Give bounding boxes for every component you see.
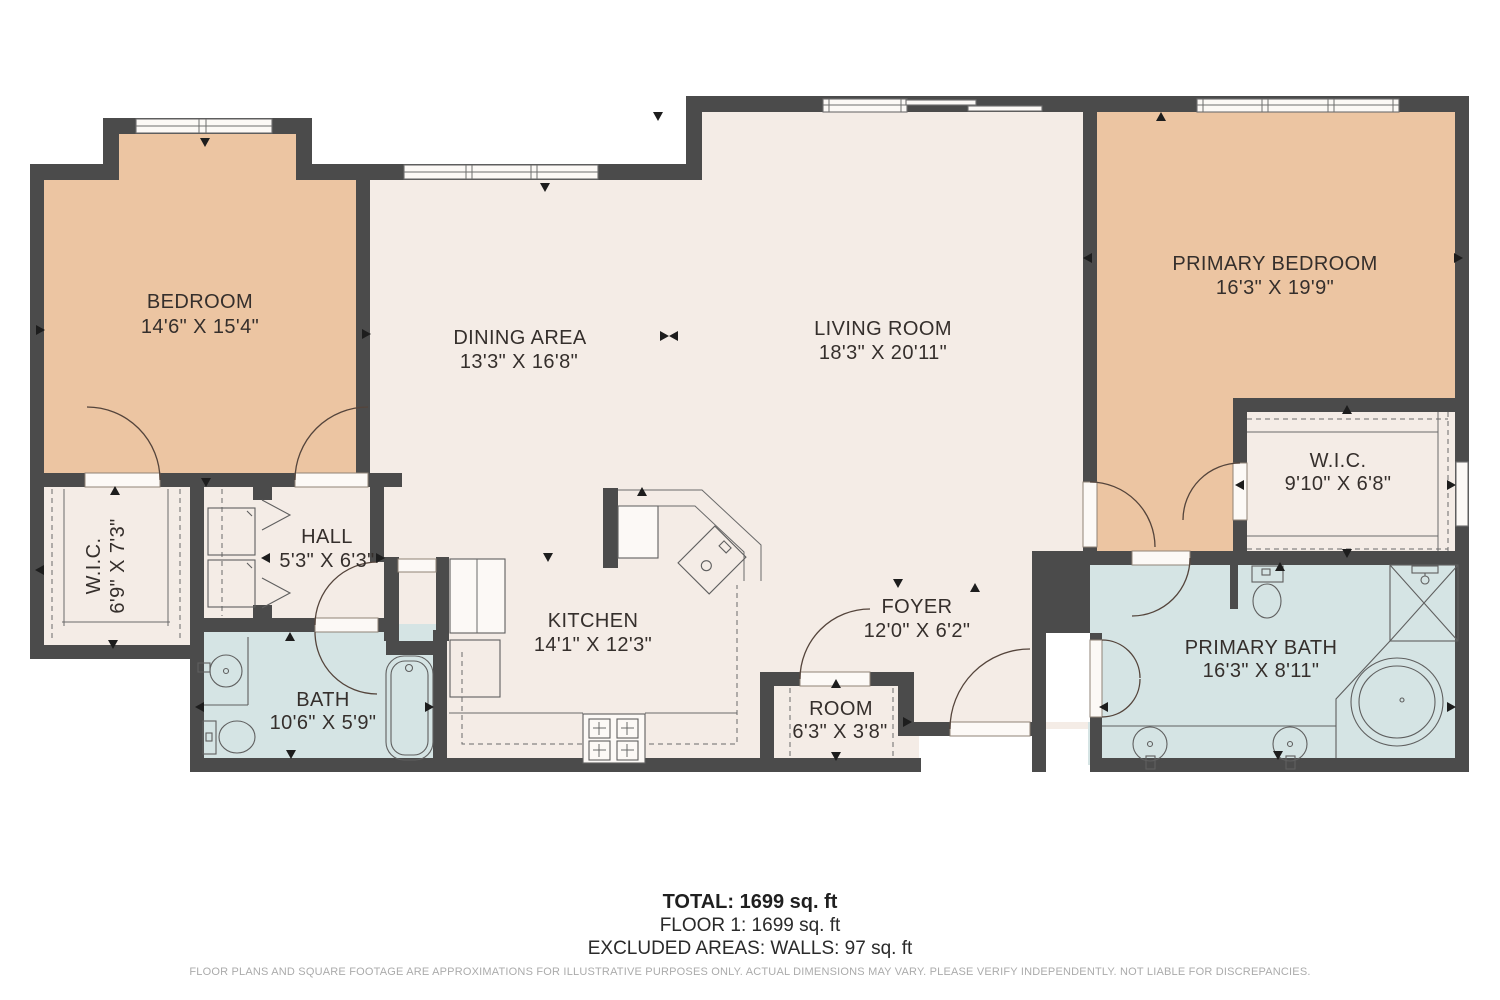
dining-window: [404, 165, 598, 179]
primary-bedroom-dims: 16'3" X 19'9": [1216, 277, 1334, 299]
bedroom-label: BEDROOM: [147, 291, 253, 313]
summary-block: TOTAL: 1699 sq. ft FLOOR 1: 1699 sq. ft …: [189, 891, 1310, 978]
living-dims: 18'3" X 20'11": [819, 342, 947, 364]
floor-plan-drawing: BEDROOM 14'6" X 15'4" DINING AREA 13'3" …: [0, 0, 1500, 1000]
living-window: [823, 99, 907, 112]
wic-right-label: W.I.C.: [1310, 450, 1367, 472]
primary-bath-label: PRIMARY BATH: [1185, 637, 1338, 659]
floor-area: FLOOR 1: 1699 sq. ft: [660, 915, 841, 936]
room-label: ROOM: [809, 698, 873, 720]
floor-plan-page: BEDROOM 14'6" X 15'4" DINING AREA 13'3" …: [0, 0, 1500, 1000]
primary-bedroom-window: [1197, 99, 1399, 112]
cased-opening: [1046, 633, 1090, 722]
kitchen-label: KITCHEN: [548, 610, 639, 632]
primary-bedroom-label: PRIMARY BEDROOM: [1172, 253, 1377, 275]
kitchen-dims: 14'1" X 12'3": [534, 634, 652, 656]
total-area: TOTAL: 1699 sq. ft: [663, 891, 838, 913]
bedroom-window: [136, 119, 272, 133]
hall-dims: 5'3" X 6'3": [279, 550, 374, 572]
primary-bath-dims: 16'3" X 8'11": [1203, 660, 1320, 682]
wic-window: [1456, 462, 1468, 526]
hall-label: HALL: [301, 526, 353, 548]
foyer-label: FOYER: [882, 596, 953, 618]
bath-dims: 10'6" X 5'9": [270, 712, 377, 734]
wic-left-label: W.I.C.: [83, 538, 105, 595]
dining-label: DINING AREA: [453, 327, 587, 349]
wic-right-dims: 9'10" X 6'8": [1285, 473, 1392, 495]
direction-marker: [653, 112, 663, 121]
bath-label: BATH: [296, 689, 349, 711]
bedroom-dims: 14'6" X 15'4": [141, 316, 259, 338]
living-label: LIVING ROOM: [814, 318, 952, 340]
stove: [583, 714, 645, 763]
disclaimer: FLOOR PLANS AND SQUARE FOOTAGE ARE APPRO…: [189, 966, 1310, 978]
dining-dims: 13'3" X 16'8": [460, 351, 578, 373]
counter-cabinet: [618, 506, 658, 558]
room-dims: 6'3" X 3'8": [792, 721, 887, 743]
foyer-dims: 12'0" X 6'2": [864, 620, 971, 642]
excluded-area: EXCLUDED AREAS: WALLS: 97 sq. ft: [588, 938, 913, 959]
wic-left-dims: 6'9" X 7'3": [107, 518, 129, 613]
